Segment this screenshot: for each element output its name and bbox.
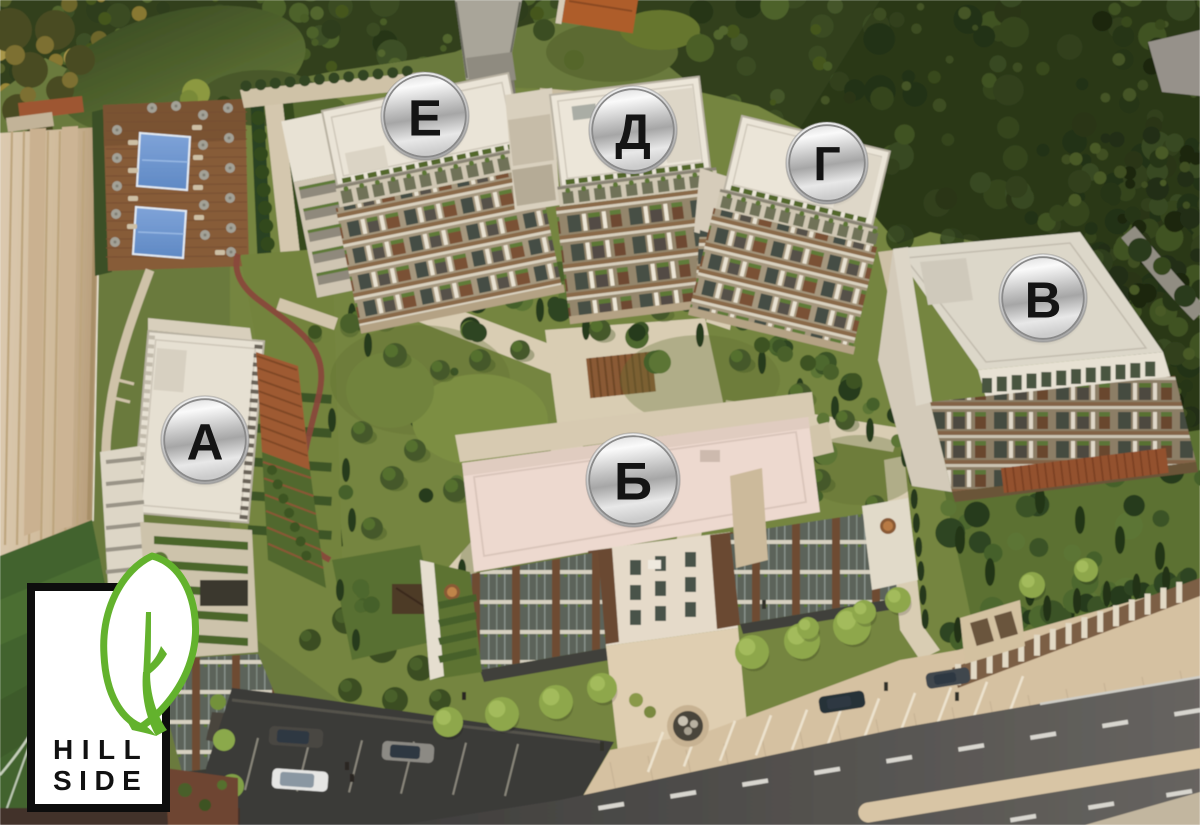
svg-text:Б: Б: [614, 453, 652, 512]
svg-text:В: В: [1025, 272, 1062, 329]
svg-text:SIDE: SIDE: [53, 765, 148, 796]
svg-text:Г: Г: [813, 139, 840, 192]
svg-text:Е: Е: [408, 90, 442, 147]
svg-text:HILL: HILL: [53, 734, 149, 765]
svg-text:А: А: [187, 414, 224, 471]
svg-text:Д: Д: [615, 104, 651, 160]
